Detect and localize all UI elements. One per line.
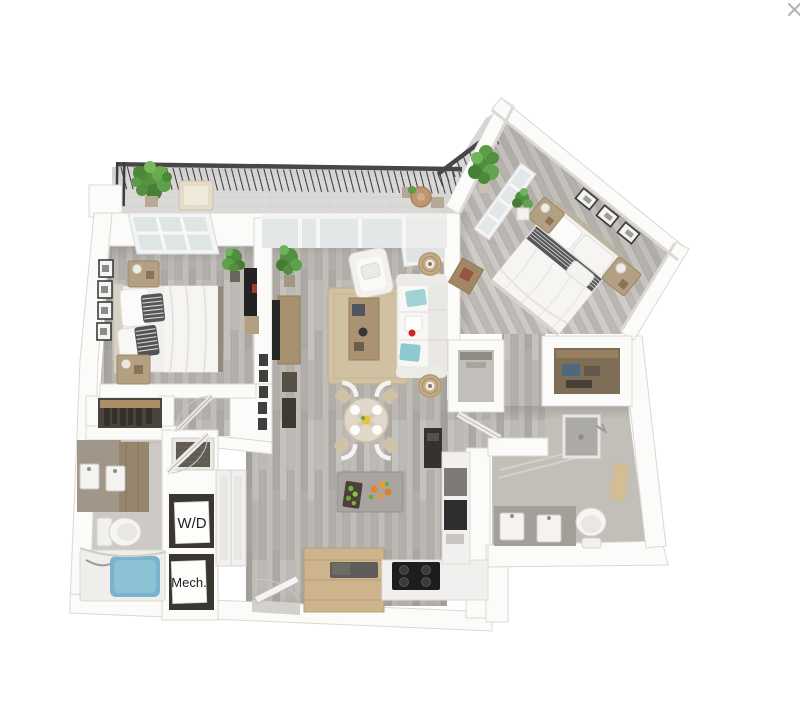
svg-text:Mech.: Mech. <box>171 575 206 590</box>
svg-text:W/D: W/D <box>177 515 206 532</box>
